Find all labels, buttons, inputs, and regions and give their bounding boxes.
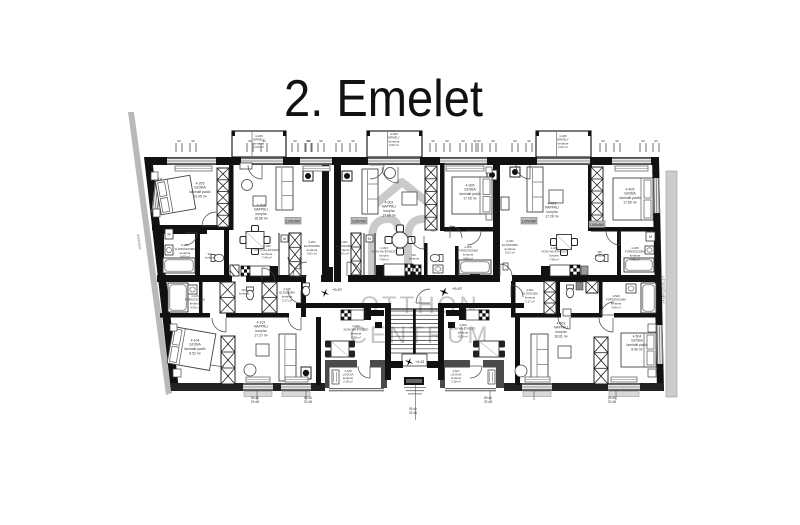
svg-text:+4.43: +4.43 [415,360,424,364]
svg-text:90: 90 [262,139,266,143]
svg-text:90: 90 [445,139,449,143]
svg-text:8.28 m²: 8.28 m² [351,335,361,339]
svg-text:90: 90 [477,139,481,143]
svg-text:4.86 m²: 4.86 m² [463,256,473,260]
svg-text:16.66 m²: 16.66 m² [254,216,268,220]
svg-text:90: 90 [641,139,645,143]
svg-text:4.59 m²: 4.59 m² [190,305,200,309]
svg-text:3.66 m²: 3.66 m² [389,143,399,147]
svg-text:90: 90 [654,139,658,143]
svg-text:M: M [649,235,652,239]
svg-text:kerámia: kerámia [205,256,215,260]
svg-text:25 dB: 25 dB [251,400,259,404]
svg-text:1165x580: 1165x580 [522,220,537,224]
svg-text:kerámia: kerámia [595,254,605,258]
svg-text:2.81 m²: 2.81 m² [339,252,349,256]
svg-text:90: 90 [513,139,517,143]
svg-text:4.86 m²: 4.86 m² [630,257,640,261]
svg-text:17.80 m²: 17.80 m² [623,200,637,204]
svg-text:4.59 m²: 4.59 m² [611,305,621,309]
svg-text:25 dB: 25 dB [409,411,417,415]
svg-text:2.28 m²: 2.28 m² [343,379,353,383]
svg-text:8.96 m²: 8.96 m² [631,347,643,351]
svg-text:+5.97: +5.97 [452,286,463,291]
svg-text:90: 90 [293,139,297,143]
svg-text:kerámia: kerámia [239,292,249,296]
svg-text:90: 90 [248,139,252,143]
svg-text:7.40 m²: 7.40 m² [262,256,272,260]
svg-text:3.61 m²: 3.61 m² [505,251,515,255]
svg-text:M: M [168,233,171,237]
svg-text:17.08 m²: 17.08 m² [382,213,396,217]
svg-text:2.28 m²: 2.28 m² [451,379,461,383]
svg-text:kerámia: kerámia [409,257,419,261]
svg-text:1165x580: 1165x580 [352,220,367,224]
svg-text:90: 90 [177,139,181,143]
svg-text:90: 90 [306,139,310,143]
svg-text:16.81 m²: 16.81 m² [554,334,568,338]
svg-text:90: 90 [351,139,355,143]
svg-text:90: 90 [615,139,619,143]
svg-text:2. Emelet: 2. Emelet [284,70,483,128]
svg-text:8.28 m²: 8.28 m² [458,334,468,338]
svg-text:13.95 m²: 13.95 m² [193,194,207,198]
svg-text:90: 90 [319,139,323,143]
svg-text:90: 90 [473,139,477,143]
svg-text:1165x580: 1165x580 [590,223,605,227]
svg-text:25 dB: 25 dB [484,400,492,404]
svg-text:3.81 m²: 3.81 m² [307,252,317,256]
svg-text:3.17 m²: 3.17 m² [525,299,535,303]
svg-text:8.52 m²: 8.52 m² [189,351,201,355]
svg-text:17.27 m²: 17.27 m² [254,333,268,337]
svg-text:M: M [283,237,286,241]
svg-text:17.28 m²: 17.28 m² [545,214,559,218]
svg-text:3.66 m²: 3.66 m² [558,145,568,149]
svg-text:M: M [368,237,371,241]
svg-text:7.98 m²: 7.98 m² [549,257,559,261]
svg-text:4.69 m²: 4.69 m² [180,255,190,259]
svg-text:17.05 m²: 17.05 m² [463,196,477,200]
svg-text:1165x580: 1165x580 [286,220,301,224]
svg-text:3.66 m²: 3.66 m² [254,145,264,149]
svg-text:90: 90 [601,139,605,143]
svg-text:90: 90 [191,139,195,143]
svg-text:5.17 m²: 5.17 m² [282,298,292,302]
svg-text:90: 90 [527,139,531,143]
svg-text:90: 90 [337,139,341,143]
svg-text:7.98 m²: 7.98 m² [379,257,389,261]
svg-text:90: 90 [461,139,465,143]
svg-text:90: 90 [491,139,495,143]
svg-text:+5.97: +5.97 [332,287,343,292]
svg-text:25 dB: 25 dB [304,400,312,404]
svg-text:25 dB: 25 dB [608,400,616,404]
svg-text:90: 90 [431,139,435,143]
